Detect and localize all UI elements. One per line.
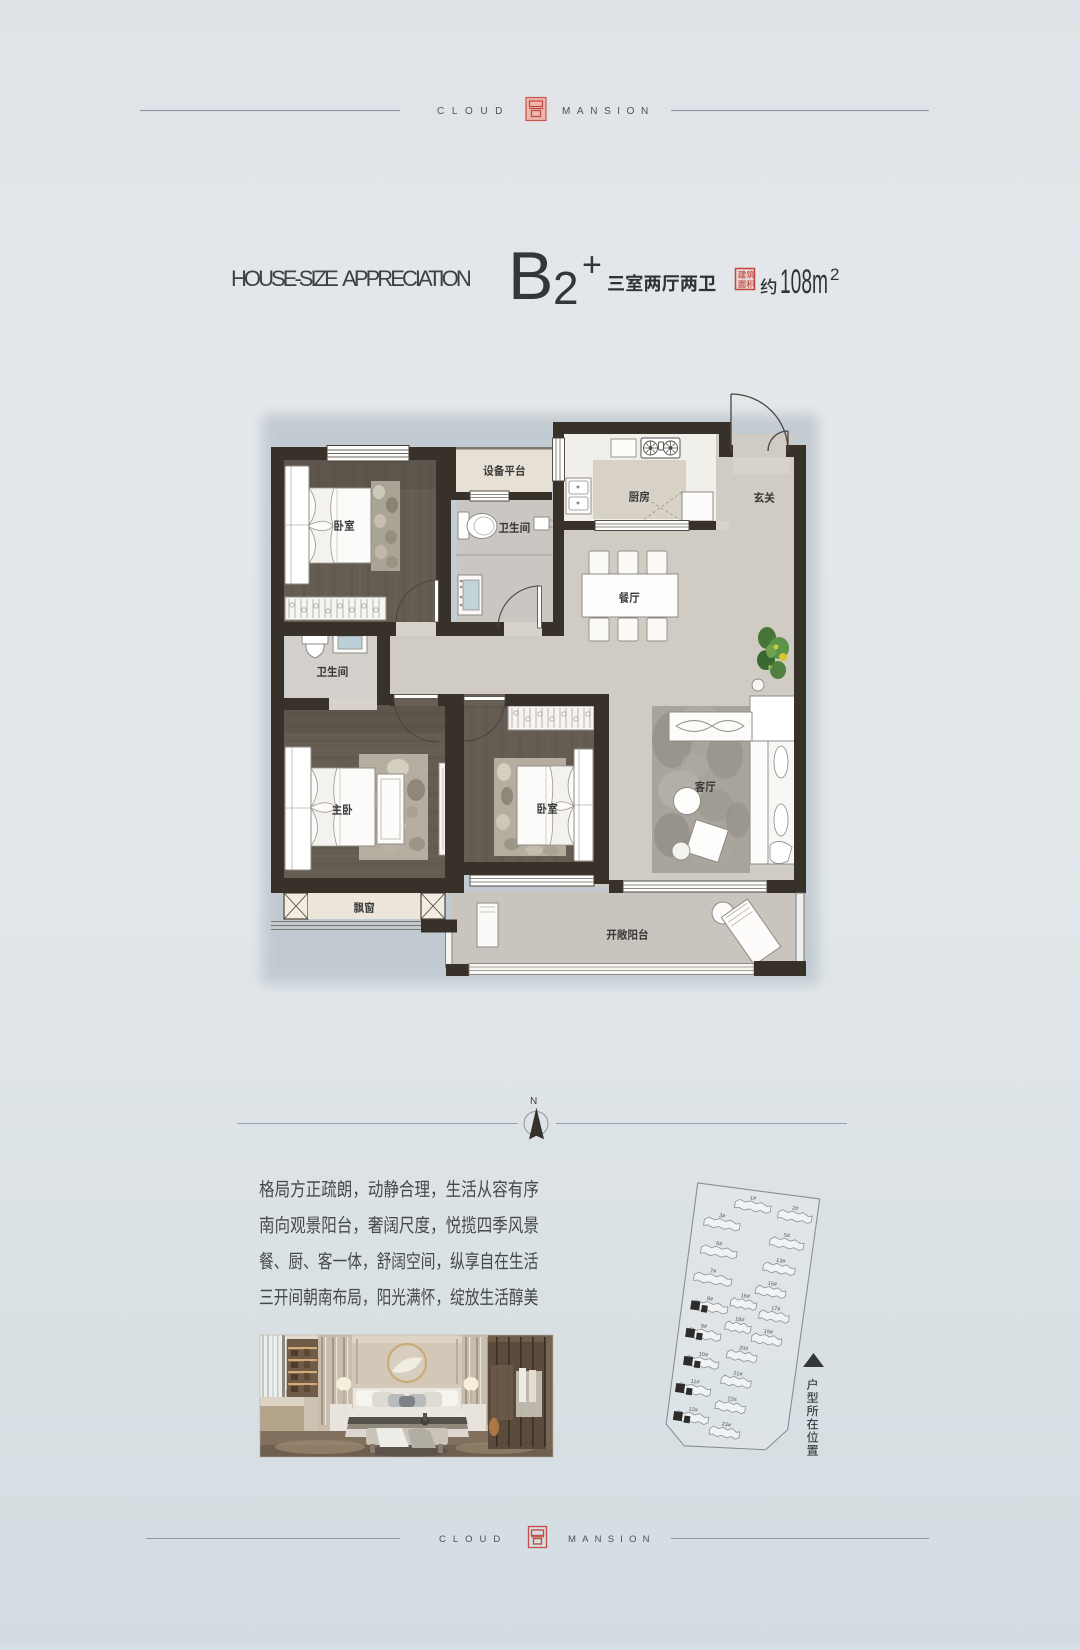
svg-text:MANSION: MANSION [568, 1534, 656, 1545]
svg-text:2: 2 [830, 265, 839, 284]
svg-text:+: + [582, 246, 602, 284]
svg-text:CLOUD: CLOUD [437, 106, 510, 117]
svg-text:108m: 108m [780, 263, 828, 301]
svg-text:CLOUD: CLOUD [439, 1534, 507, 1545]
svg-text:N: N [530, 1096, 537, 1107]
svg-text:2: 2 [553, 262, 579, 314]
svg-text:HOUSE-SIZE APPRECIATION: HOUSE-SIZE APPRECIATION [231, 266, 474, 291]
svg-text:MANSION: MANSION [562, 106, 655, 117]
svg-text:B: B [508, 238, 553, 314]
